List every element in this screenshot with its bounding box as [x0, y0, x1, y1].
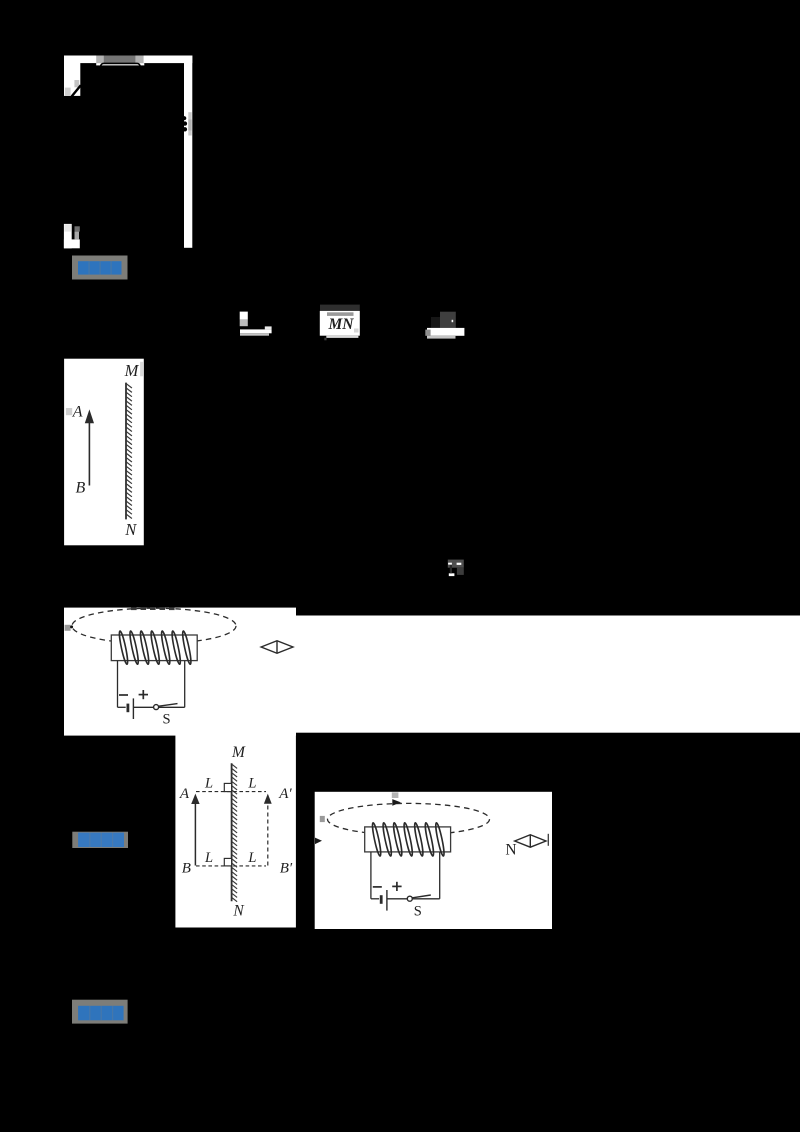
svg-text:A′: A′	[278, 786, 292, 802]
svg-text:S: S	[414, 904, 422, 920]
svg-text:S: S	[163, 712, 171, 728]
svg-text:A: A	[179, 786, 190, 802]
svg-text:L: L	[204, 850, 213, 866]
svg-text:L: L	[247, 776, 256, 792]
svg-text:M: M	[231, 744, 246, 761]
svg-text:MN: MN	[328, 316, 355, 333]
svg-text:L: L	[247, 850, 256, 866]
svg-text:N: N	[124, 520, 137, 539]
svg-text:M: M	[124, 361, 140, 380]
svg-text:N: N	[505, 842, 516, 859]
svg-text:A: A	[72, 404, 83, 421]
svg-text:B′: B′	[280, 860, 293, 876]
svg-text:B: B	[76, 480, 86, 497]
svg-text:B: B	[182, 860, 191, 876]
svg-text:L: L	[204, 776, 213, 792]
svg-text:N: N	[232, 903, 245, 920]
